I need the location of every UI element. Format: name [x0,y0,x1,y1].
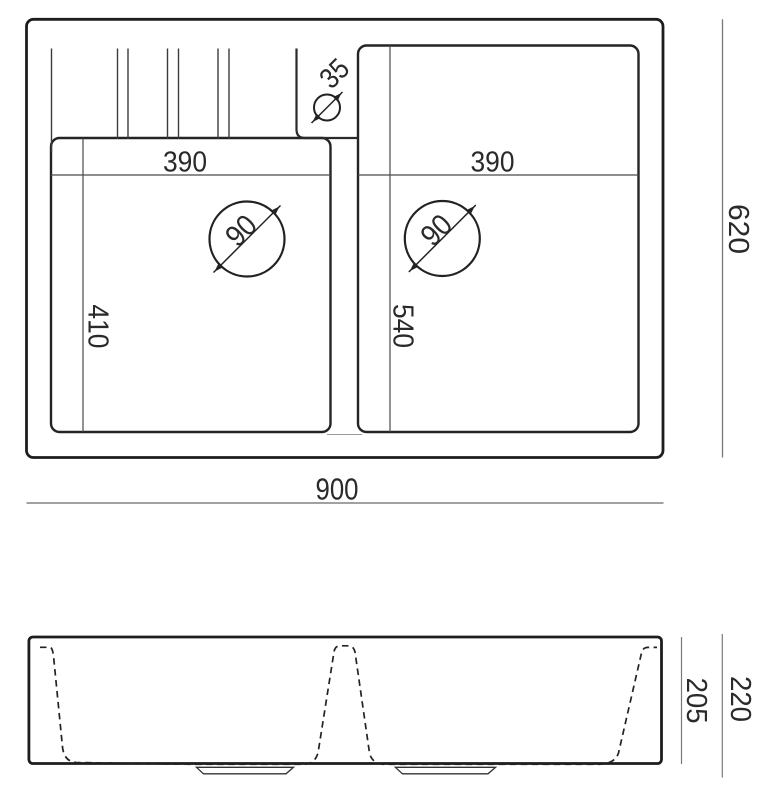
svg-text:220: 220 [724,676,756,722]
svg-text:205: 205 [680,678,712,724]
svg-text:390: 390 [471,147,515,179]
svg-text:540: 540 [387,304,419,348]
svg-text:410: 410 [82,304,114,348]
svg-text:900: 900 [316,472,359,507]
svg-text:620: 620 [722,204,754,254]
svg-text:390: 390 [163,147,207,179]
